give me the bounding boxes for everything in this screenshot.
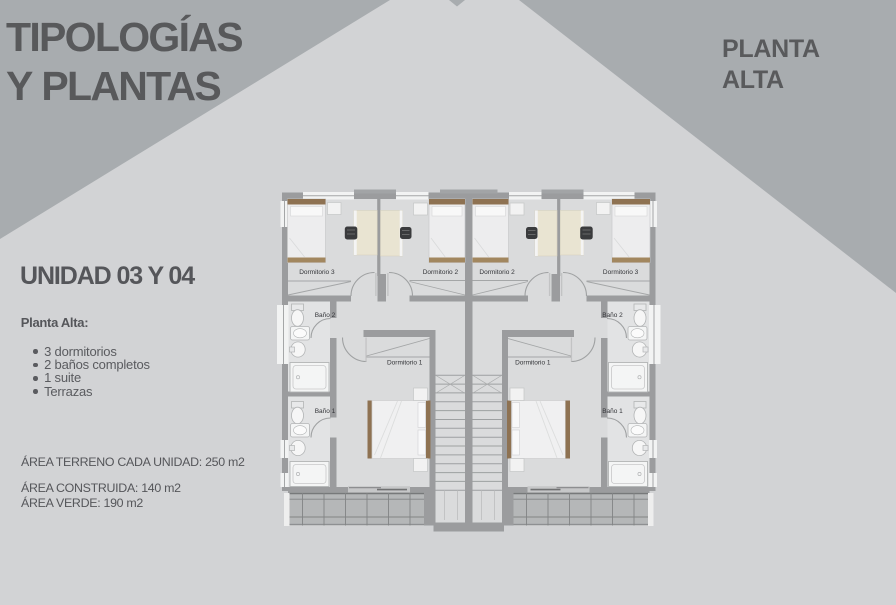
svg-text:Dormitorio 3: Dormitorio 3 bbox=[603, 269, 639, 276]
svg-text:Dormitorio 1: Dormitorio 1 bbox=[387, 359, 423, 366]
svg-text:Dormitorio 2: Dormitorio 2 bbox=[423, 269, 459, 276]
svg-text:Dormitorio 1: Dormitorio 1 bbox=[515, 359, 551, 366]
svg-text:Baño 2: Baño 2 bbox=[315, 312, 336, 319]
svg-text:Dormitorio 2: Dormitorio 2 bbox=[479, 269, 515, 276]
svg-text:Dormitorio 3: Dormitorio 3 bbox=[299, 269, 335, 276]
svg-text:Baño 1: Baño 1 bbox=[602, 408, 623, 415]
svg-text:Baño 2: Baño 2 bbox=[602, 312, 623, 319]
svg-text:Baño 1: Baño 1 bbox=[315, 408, 336, 415]
